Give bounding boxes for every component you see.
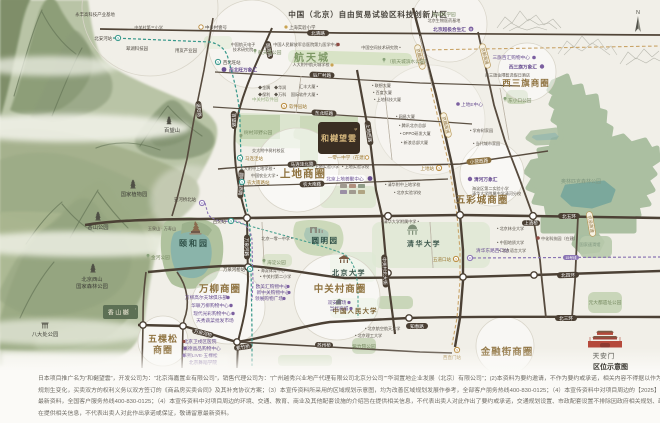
svg-text:（航天城滨水公园）: （航天城滨水公园） xyxy=(387,58,429,65)
svg-text:西北旺万象汇: 西北旺万象汇 xyxy=(229,67,257,74)
svg-text:领展购物广场: 领展购物广场 xyxy=(255,295,283,302)
svg-text:• 北京理工大学: • 北京理工大学 xyxy=(355,332,382,338)
svg-text:圆明园: 圆明园 xyxy=(312,236,339,245)
svg-text:永丰高科技产业基地: 永丰高科技产业基地 xyxy=(75,11,115,18)
svg-text:交大附中树村校区: 交大附中树村校区 xyxy=(252,147,285,153)
svg-text:• 网易大厦: • 网易大厦 xyxy=(396,113,415,119)
svg-text:树村郊野公园: 树村郊野公园 xyxy=(244,129,272,136)
svg-text:万泉河路: 万泉河路 xyxy=(243,238,250,257)
svg-text:北京上地荟聚中心: 北京上地荟聚中心 xyxy=(326,176,364,183)
svg-text:• 中国地质大学: • 中国地质大学 xyxy=(497,239,524,245)
svg-text:知春路: 知春路 xyxy=(410,323,424,330)
svg-text:• 学府树家园: • 学府树家园 xyxy=(470,127,493,133)
svg-text:北京西山: 北京西山 xyxy=(81,275,102,283)
svg-text:• 北京航空航天大学: • 北京航空航天大学 xyxy=(365,325,400,331)
svg-text:• 中关村第二小学: • 中关村第二小学 xyxy=(260,273,291,279)
svg-text:新中关购物中心: 新中关购物中心 xyxy=(257,289,290,296)
svg-text:元大都遗址公园: 元大都遗址公园 xyxy=(589,299,622,306)
svg-text:• 北京林业大学: • 北京林业大学 xyxy=(497,225,524,231)
svg-text:• 当代城市家园: • 当代城市家园 xyxy=(473,140,500,146)
svg-text:中关村壹号: 中关村壹号 xyxy=(205,24,228,31)
svg-text:万柳高尔夫球俱乐部: 万柳高尔夫球俱乐部 xyxy=(185,294,228,301)
svg-text:G: G xyxy=(239,157,242,161)
svg-text:上清桥: 上清桥 xyxy=(524,220,538,227)
svg-text:N: N xyxy=(636,10,640,16)
svg-text:G: G xyxy=(117,37,120,41)
svg-text:国家森林公园: 国家森林公园 xyxy=(76,282,108,290)
svg-text:• 联想大厦: • 联想大厦 xyxy=(372,82,391,88)
svg-text:• 清华附中上地学校: • 清华附中上地学校 xyxy=(385,181,420,187)
svg-text:玉泉山 · 万寿山: 玉泉山 · 万寿山 xyxy=(148,225,176,231)
svg-text:清华大学: 清华大学 xyxy=(407,239,441,248)
svg-text:北五环: 北五环 xyxy=(562,213,576,220)
svg-text:五道口站: 五道口站 xyxy=(433,256,451,263)
svg-text:• 腾讯北京总部: • 腾讯北京总部 xyxy=(399,122,426,128)
svg-text:西三旗万象汇: 西三旗万象汇 xyxy=(509,64,537,71)
svg-text:G: G xyxy=(241,181,244,185)
svg-text:北京大学: 北京大学 xyxy=(332,268,366,277)
svg-text:国际软件大厦 •: 国际软件大厦 • xyxy=(291,91,319,97)
svg-text:G: G xyxy=(438,167,441,171)
svg-text:在提供相关信息，不代表出卖人对此作出承诺或保证，敬请留意最新: 在提供相关信息，不代表出卖人对此作出承诺或保证，敬请留意最新资料。 xyxy=(38,409,232,417)
svg-text:人大附中上地学校 •: 人大附中上地学校 • xyxy=(240,165,276,171)
svg-text:人大附中航天城学校: 人大附中航天城学校 xyxy=(293,61,330,67)
svg-text:金河公园: 金河公园 xyxy=(151,254,170,261)
svg-text:当代商城: 当代商城 xyxy=(330,305,349,312)
svg-text:• 上地实验小学: • 上地实验小学 xyxy=(312,163,339,169)
svg-text:中国人民解放军总医院第九医学中心: 中国人民解放军总医院第九医学中心 xyxy=(273,41,339,47)
svg-text:汇丰大厦 •: 汇丰大厦 • xyxy=(299,83,319,89)
svg-text:农大南路站: 农大南路站 xyxy=(247,179,270,186)
svg-text:M: M xyxy=(470,28,473,32)
svg-text:安河桥北站: 安河桥北站 xyxy=(174,196,197,203)
svg-text:G: G xyxy=(283,105,286,109)
svg-text:• 新浪总部大厦: • 新浪总部大厦 xyxy=(401,139,428,145)
svg-text:中国空间技术研究院 •: 中国空间技术研究院 • xyxy=(361,44,401,50)
svg-text:北京生物医药基地: 北京生物医药基地 xyxy=(428,17,461,23)
svg-text:• OPPO研发大厦: • OPPO研发大厦 xyxy=(400,130,431,136)
svg-text:规划生变化，买卖双方的权利义务以双方签订的《商品房买卖合同》: 规划生变化，买卖双方的权利义务以双方签订的《商品房买卖合同》及其补充协议方案；（… xyxy=(38,386,660,394)
svg-text:中国（北京）自由贸易试验区科技创新片区: 中国（北京）自由贸易试验区科技创新片区 xyxy=(288,9,447,19)
svg-text:万柳商圈: 万柳商圈 xyxy=(198,283,241,295)
svg-text:上地站: 上地站 xyxy=(421,165,435,172)
svg-text:• 上地实验学校: • 上地实验学校 xyxy=(342,163,369,169)
svg-text:中关村商圈: 中关村商圈 xyxy=(314,283,367,295)
svg-text:颐和园: 颐和园 xyxy=(179,238,209,248)
svg-text:生命科学园: 生命科学园 xyxy=(432,11,456,18)
svg-text:软件园站: 软件园站 xyxy=(289,103,307,110)
svg-text:G: G xyxy=(455,258,458,262)
svg-text:上地E中心: 上地E中心 xyxy=(461,101,483,108)
svg-text:北三环: 北三环 xyxy=(559,315,573,322)
svg-text:中国农业大学 •: 中国农业大学 • xyxy=(251,172,279,178)
svg-text:• 北京实验学校: • 北京实验学校 xyxy=(394,189,421,195)
svg-text:• 清华大学附属中学 •: • 清华大学附属中学 • xyxy=(381,218,419,224)
svg-text:一零一中学（在建）: 一零一中学（在建） xyxy=(328,154,369,161)
svg-text:华联万柳购物中心: 华联万柳购物中心 xyxy=(191,302,229,309)
svg-text:百望山: 百望山 xyxy=(164,126,180,134)
svg-text:G: G xyxy=(217,61,220,65)
svg-text:西苑站: 西苑站 xyxy=(213,218,227,225)
svg-text:最新资料，全国客户服务热线400-830-0125；（4）本: 最新资料，全国客户服务热线400-830-0125；（4）本宣传资料中对项目周边… xyxy=(38,397,660,405)
svg-text:八大处公园: 八大处公园 xyxy=(32,330,59,338)
svg-text:五彩城商圈: 五彩城商圈 xyxy=(456,194,509,206)
svg-text:三旗百汇购物中心: 三旗百汇购物中心 xyxy=(492,54,530,61)
svg-text:海淀公园: 海淀公园 xyxy=(267,259,286,266)
svg-text:• 北京语言大学: • 北京语言大学 xyxy=(499,247,526,253)
svg-text:◆金隅: ◆金隅 xyxy=(258,84,270,90)
svg-text:15号线: 15号线 xyxy=(565,255,577,260)
svg-text:天秀蔬菜批发市场: 天秀蔬菜批发市场 xyxy=(196,317,234,324)
svg-text:香山樾: 香山樾 xyxy=(108,309,131,317)
svg-text:北安河站: 北安河站 xyxy=(94,35,112,42)
svg-text:北京超极合生汇: 北京超极合生汇 xyxy=(433,26,466,33)
svg-text:西三旗商圈: 西三旗商圈 xyxy=(502,78,550,88)
svg-text:M: M xyxy=(201,202,204,206)
svg-text:M: M xyxy=(469,257,472,261)
svg-text:西三旗金隅智选假日酒店: 西三旗金隅智选假日酒店 xyxy=(485,72,530,78)
svg-text:北京卫戍区医院: 北京卫戍区医院 xyxy=(184,338,217,345)
svg-text:万泉河桥站: 万泉河桥站 xyxy=(223,266,246,273)
svg-text:奥林匹克森林公园: 奥林匹克森林公园 xyxy=(561,178,601,185)
svg-text:• 海淀体育中心: • 海淀体育中心 xyxy=(258,267,285,273)
svg-text:清河万象汇: 清河万象汇 xyxy=(474,176,498,183)
svg-text:• 百度大厦: • 百度大厦 xyxy=(373,89,392,95)
svg-text:用友产业园: 用友产业园 xyxy=(175,47,198,54)
svg-text:国家速滑馆: 国家速滑馆 xyxy=(580,241,601,248)
svg-text:中关村软件园: 中关村软件园 xyxy=(252,96,279,103)
svg-text:香山公园: 香山公园 xyxy=(87,223,108,231)
svg-text:国家植物园: 国家植物园 xyxy=(121,190,148,198)
svg-text:五棵松: 五棵松 xyxy=(148,333,178,344)
svg-text:技术研究院: 技术研究院 xyxy=(233,46,253,52)
svg-text:和樾望雲: 和樾望雲 xyxy=(321,133,357,143)
svg-text:欧美汇购物中心: 欧美汇购物中心 xyxy=(256,283,289,290)
svg-text:西北旺站: 西北旺站 xyxy=(223,59,241,66)
svg-text:◆华润: ◆华润 xyxy=(274,84,286,90)
svg-text:上海实验小学: 上海实验小学 xyxy=(289,24,316,31)
svg-text:区位示意图: 区位示意图 xyxy=(593,362,628,371)
svg-text:航天城公园: 航天城公园 xyxy=(258,49,282,56)
svg-text:翠湖科技园: 翠湖科技园 xyxy=(126,45,149,52)
svg-text:G: G xyxy=(249,268,252,272)
svg-text:马连洼站: 马连洼站 xyxy=(245,155,263,162)
svg-text:现代光彩购物中心: 现代光彩购物中心 xyxy=(193,310,231,317)
svg-text:中关村第三小学: 中关村第三小学 xyxy=(134,24,163,30)
svg-text:北京一零一中学 •: 北京一零一中学 • xyxy=(261,235,293,241)
svg-text:双安商场: 双安商场 xyxy=(328,299,347,306)
svg-text:东小口公园: 东小口公园 xyxy=(508,97,532,104)
svg-text:G: G xyxy=(230,220,233,224)
svg-text:• 上地科技大厦: • 上地科技大厦 xyxy=(374,96,401,102)
svg-text:日本项目推广名为“和樾望雲”，开发公司为：“北京海嘉置业有限: 日本项目推广名为“和樾望雲”，开发公司为：“北京海嘉置业有限公司”，销售代理公司… xyxy=(38,374,660,382)
svg-text:中化科技园（在建）: 中化科技园（在建） xyxy=(541,235,578,241)
